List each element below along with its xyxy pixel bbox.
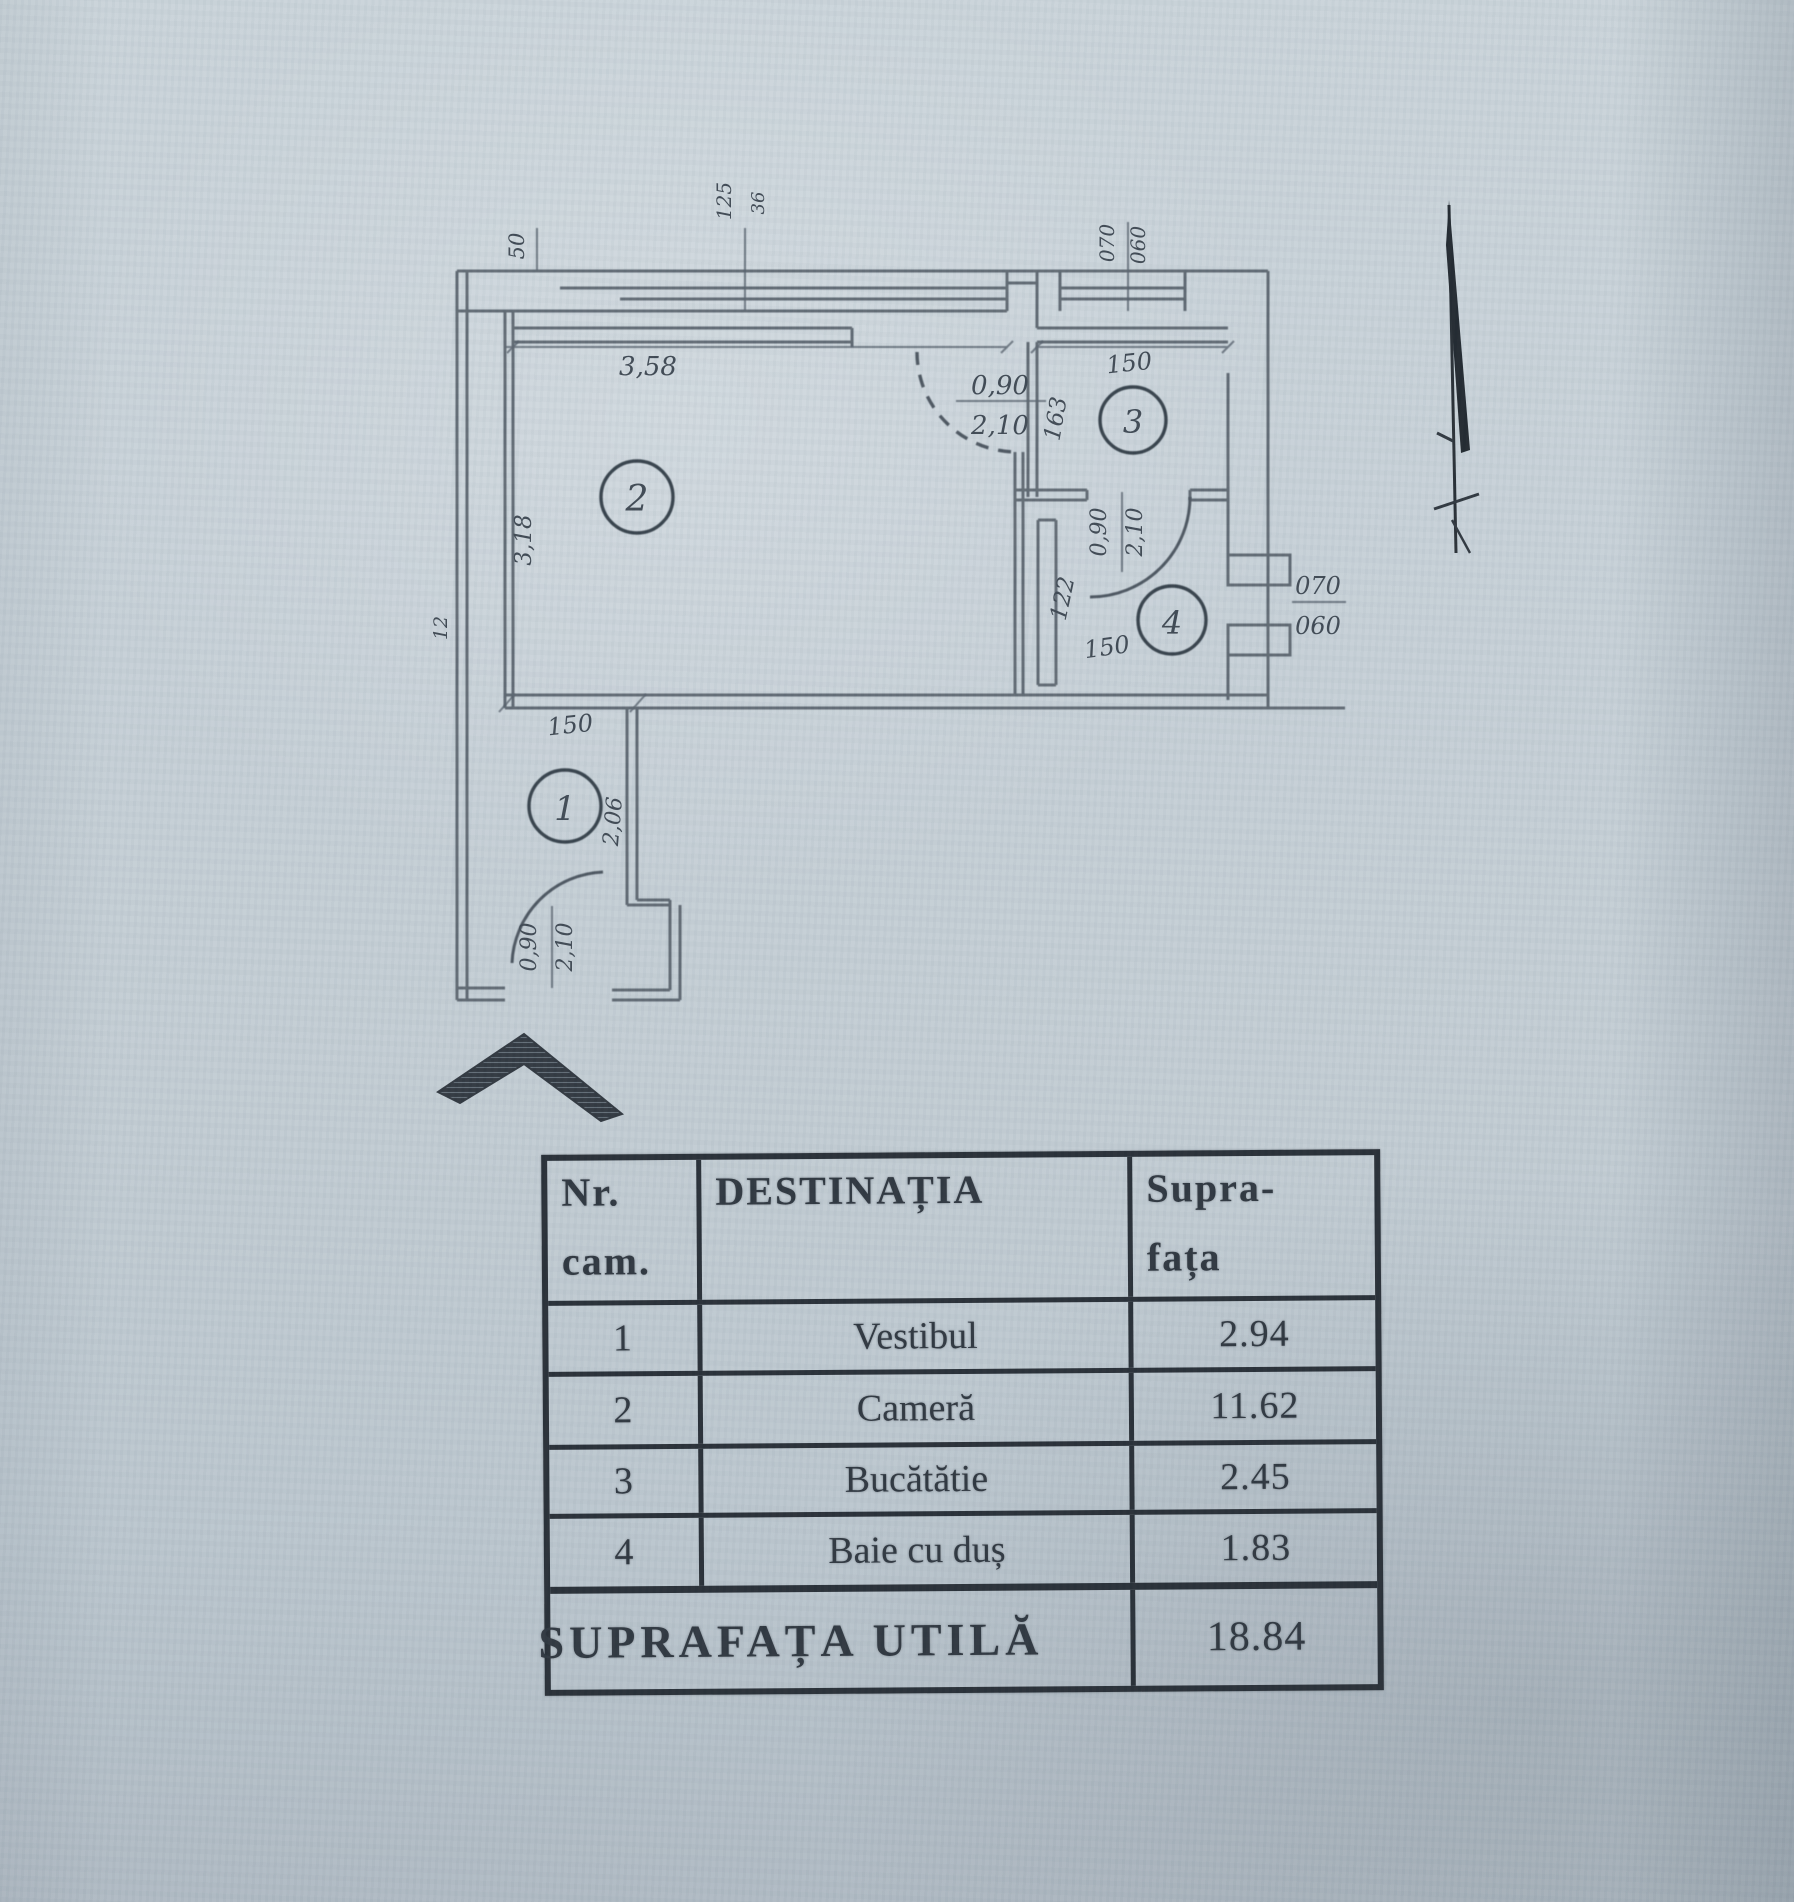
- table-footer-row: SUPRAFAȚA UTILĂ 18.84: [550, 1581, 1378, 1690]
- room-number-1: 1: [554, 789, 576, 829]
- scanned-floor-plan-page: 50 125 36 3,58 3,18 12 150 163 070 060 1…: [0, 0, 1794, 1902]
- door-bath-width: 0,90: [1087, 508, 1112, 557]
- dim-vestibule-height: 2,06: [599, 796, 628, 848]
- header-cam: cam.: [562, 1237, 651, 1285]
- room-number-2: 2: [625, 479, 649, 520]
- footer-total-area: 18.84: [1130, 1588, 1378, 1686]
- table-row: 2 Cameră 11.62: [549, 1366, 1376, 1445]
- row4-nr: 4: [550, 1518, 699, 1587]
- table-row: 1 Vestibul 2.94: [548, 1295, 1375, 1372]
- door-kitchen-height: 2,10: [970, 411, 1029, 441]
- dim-room2-height: 3,18: [511, 514, 537, 565]
- wall-lines: [457, 271, 1345, 1000]
- dim-wall-thickness: 12: [430, 616, 452, 640]
- row4-area: 1.83: [1130, 1513, 1377, 1583]
- door-entry-height: 2,10: [553, 923, 578, 973]
- door-entry-width: 0,90: [517, 923, 542, 972]
- row2-area: 11.62: [1129, 1371, 1376, 1441]
- dim-kitchen-width: 150: [1105, 347, 1153, 380]
- room-numbers: 1 2 3 4: [554, 403, 1182, 829]
- north-arrow: [1434, 200, 1479, 553]
- table-row: 3 Bucătătie 2.45: [549, 1439, 1376, 1514]
- dim-window-kitchen-a: 070: [1095, 224, 1119, 262]
- dim-room2-width: 3,58: [619, 352, 677, 382]
- door-bath-height: 2,10: [1123, 508, 1148, 558]
- header-fata: fața: [1147, 1233, 1222, 1281]
- header-suprafata: Supra- fața: [1127, 1155, 1375, 1297]
- table-row: 4 Baie cu duș 1.83: [550, 1508, 1377, 1587]
- row3-area: 2.45: [1129, 1444, 1376, 1510]
- row1-nr: 1: [548, 1305, 697, 1372]
- dim-window-main-b: 36: [748, 192, 769, 215]
- row1-area: 2.94: [1128, 1300, 1375, 1368]
- dim-kitchen-height: 163: [1039, 395, 1072, 443]
- door-kitchen-width: 0,90: [971, 371, 1029, 401]
- areas-table: Nr. cam. DESTINAȚIA Supra- fața 1 Vestib…: [541, 1149, 1384, 1696]
- header-nr: Nr.: [561, 1168, 620, 1215]
- row3-nr: 3: [549, 1449, 698, 1514]
- row1-destination: Vestibul: [697, 1302, 1128, 1371]
- dim-window-bath-b: 060: [1295, 612, 1341, 640]
- room-circles: [529, 387, 1206, 842]
- room-number-3: 3: [1123, 403, 1143, 441]
- footer-label: SUPRAFAȚA UTILĂ: [538, 1590, 1131, 1690]
- dim-window-main-a: 125: [712, 182, 736, 220]
- row2-destination: Cameră: [698, 1373, 1129, 1444]
- header-destinatia: DESTINAȚIA: [696, 1157, 1128, 1300]
- header-nr-cam: Nr. cam.: [547, 1160, 697, 1301]
- row2-nr: 2: [549, 1376, 698, 1445]
- entrance-arrow: [438, 1034, 622, 1121]
- dim-bath-width: 150: [1082, 630, 1131, 664]
- table-header-row: Nr. cam. DESTINAȚIA Supra- fața: [547, 1155, 1375, 1301]
- dim-vestibule-width: 150: [546, 709, 594, 742]
- row3-destination: Bucătătie: [698, 1446, 1129, 1513]
- dim-window-kitchen-b: 060: [1126, 226, 1150, 264]
- header-supra: Supra-: [1146, 1164, 1276, 1212]
- dim-window-bath-a: 070: [1295, 572, 1341, 600]
- row4-destination: Baie cu duș: [699, 1515, 1130, 1586]
- dim-wall-seg: 50: [505, 233, 529, 260]
- dim-bath-height: 122: [1046, 574, 1081, 622]
- room-number-4: 4: [1161, 604, 1182, 642]
